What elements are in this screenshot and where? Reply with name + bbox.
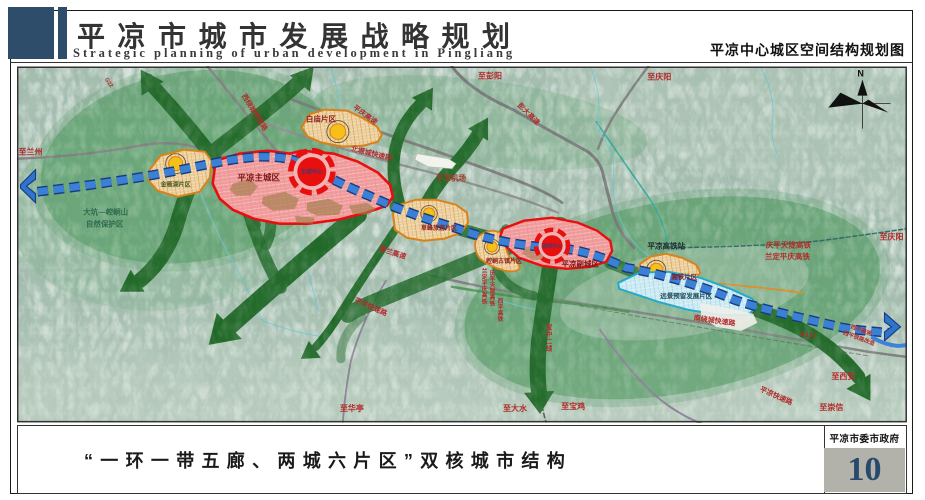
svg-text:平凉副城区: 平凉副城区 bbox=[561, 258, 599, 268]
svg-text:主城中心: 主城中心 bbox=[301, 167, 324, 175]
svg-text:兰定平庆高铁: 兰定平庆高铁 bbox=[765, 250, 810, 260]
svg-text:西平高铁: 西平高铁 bbox=[498, 296, 504, 322]
svg-text:白庙片区: 白庙片区 bbox=[306, 113, 336, 123]
svg-text:金雁湖片区: 金雁湖片区 bbox=[160, 180, 191, 188]
svg-text:至崇信: 至崇信 bbox=[819, 401, 843, 411]
svg-text:至宝鸡: 至宝鸡 bbox=[561, 400, 585, 410]
svg-text:平凉主城区: 平凉主城区 bbox=[238, 172, 281, 182]
svg-text:平凉机场: 平凉机场 bbox=[436, 172, 466, 182]
svg-text:兰定平庆高铁: 兰定平庆高铁 bbox=[481, 266, 488, 305]
svg-text:至庆阳: 至庆阳 bbox=[647, 71, 671, 81]
svg-text:至兰州: 至兰州 bbox=[19, 146, 43, 156]
svg-text:草峰旅游片区: 草峰旅游片区 bbox=[421, 224, 457, 232]
svg-text:至华亭: 至华亭 bbox=[340, 402, 364, 412]
svg-text:N: N bbox=[857, 68, 863, 78]
svg-text:崆峒古镇片区: 崆峒古镇片区 bbox=[486, 256, 522, 264]
svg-text:至西安: 至西安 bbox=[831, 370, 855, 380]
svg-text:宝中二线: 宝中二线 bbox=[546, 321, 553, 352]
svg-text:至庆阳: 至庆阳 bbox=[879, 231, 903, 241]
svg-text:大坑—崆峒山: 大坑—崆峒山 bbox=[83, 206, 128, 216]
svg-text:自然保护区: 自然保护区 bbox=[86, 218, 124, 228]
svg-text:副城中心: 副城中心 bbox=[542, 242, 562, 249]
svg-text:庆平天陇高铁: 庆平天陇高铁 bbox=[489, 268, 496, 307]
svg-text:平凉高铁站: 平凉高铁站 bbox=[647, 240, 685, 250]
svg-text:至彭阳: 至彭阳 bbox=[478, 70, 502, 80]
svg-text:高铁片区: 高铁片区 bbox=[671, 271, 698, 280]
svg-text:至大水: 至大水 bbox=[503, 402, 528, 412]
svg-text:远景预留发展片区: 远景预留发展片区 bbox=[660, 290, 712, 299]
svg-text:庆平天陇高铁: 庆平天陇高铁 bbox=[765, 239, 811, 249]
